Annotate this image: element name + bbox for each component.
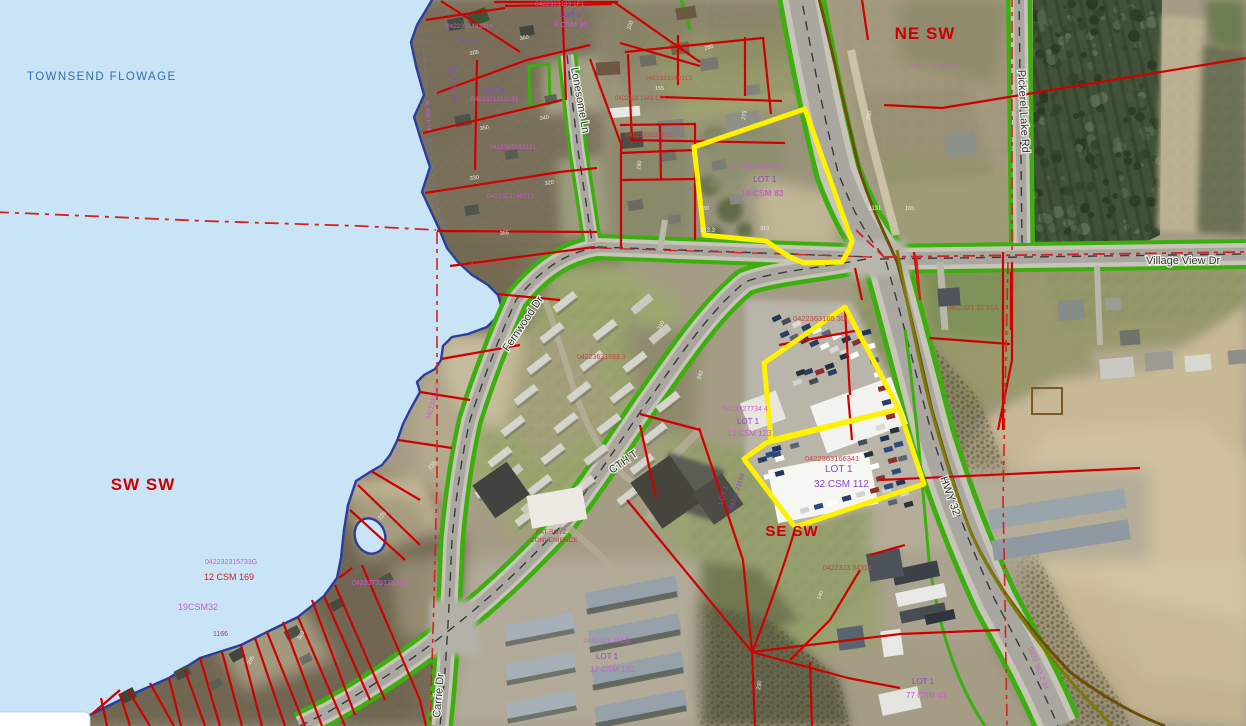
svg-text:0422323 34313: 0422323 34313: [823, 565, 872, 572]
svg-text:0422321313131: 0422321313131: [471, 96, 518, 103]
svg-text:LOT 1: LOT 1: [912, 677, 935, 686]
svg-text:0422363143331: 0422363143331: [489, 144, 536, 151]
svg-text:19CSM32: 19CSM32: [178, 602, 218, 612]
svg-text:313.3: 313.3: [700, 228, 716, 234]
svg-text:LOT 1: LOT 1: [825, 464, 853, 475]
svg-text:0422327734 4: 0422327734 4: [723, 406, 768, 413]
svg-text:340: 340: [539, 115, 549, 122]
svg-text:165: 165: [905, 206, 914, 212]
svg-text:0422331433314: 0422331433314: [446, 23, 493, 30]
svg-text:230: 230: [700, 206, 709, 212]
svg-text:32 CSM 112: 32 CSM 112: [814, 479, 869, 490]
svg-text:3 CSM 30: 3 CSM 30: [554, 20, 587, 29]
svg-text:77 CSM 43: 77 CSM 43: [906, 691, 947, 700]
svg-text:0422323140313: 0422323140313: [645, 75, 692, 82]
svg-text:CONVENIENCE: CONVENIENCE: [530, 537, 578, 544]
svg-text:LOT 1: LOT 1: [458, 37, 479, 46]
svg-text:1166: 1166: [213, 631, 228, 638]
svg-text:12 CSM 169: 12 CSM 169: [204, 572, 254, 582]
svg-text:355: 355: [500, 230, 510, 237]
svg-text:042232315733G: 042232315733G: [205, 559, 257, 566]
svg-text:0422323133 1F1: 0422323133 1F1: [535, 1, 585, 8]
svg-text:TOWNSEND FLOWAGE: TOWNSEND FLOWAGE: [27, 71, 177, 83]
svg-text:0422323140313: 0422323140313: [487, 193, 534, 200]
svg-text:0422321 31 31A: 0422321 31 31A: [947, 305, 999, 312]
svg-text:LOT 1: LOT 1: [753, 174, 777, 184]
svg-text:16 CSM 83: 16 CSM 83: [741, 188, 784, 198]
svg-text:0422323144131: 0422323144131: [470, 263, 521, 270]
svg-text:310: 310: [760, 226, 769, 232]
svg-text:3131: 3131: [868, 206, 882, 212]
svg-text:0422363166 3D: 0422363166 3D: [793, 314, 847, 323]
svg-text:2422421 2A1G: 2422421 2A1G: [583, 638, 630, 645]
svg-text:SW SW: SW SW: [111, 475, 176, 494]
svg-text:LOT 1: LOT 1: [560, 10, 581, 19]
svg-text:350: 350: [479, 125, 489, 132]
svg-text:155: 155: [655, 86, 664, 92]
svg-text:0422363166341: 0422363166341: [805, 454, 859, 463]
svg-text:0422323132321: 0422323132321: [625, 132, 672, 139]
svg-text:04223631693 3: 04223631693 3: [577, 354, 626, 361]
svg-text:13 CSM 123: 13 CSM 123: [727, 429, 772, 438]
svg-text:12 CSM 132: 12 CSM 132: [590, 665, 635, 674]
svg-text:Village View Dr: Village View Dr: [1146, 255, 1221, 267]
svg-text:LOT 1: LOT 1: [737, 417, 760, 426]
svg-text:0422321 13313: 0422321 13313: [909, 63, 958, 70]
svg-text:SE SW: SE SW: [765, 523, 818, 540]
svg-text:0422321414 14: 0422321414 14: [733, 164, 782, 171]
svg-text:320: 320: [544, 180, 554, 187]
svg-text:LOT 2: LOT 2: [483, 86, 504, 95]
svg-text:LOT 1: LOT 1: [596, 652, 619, 661]
svg-text:0422323 1343 13A: 0422323 1343 13A: [615, 96, 666, 102]
svg-text:330: 330: [469, 175, 479, 182]
svg-text:NE SW: NE SW: [895, 24, 956, 43]
svg-text:0422377317373E: 0422377317373E: [352, 580, 408, 587]
svg-text:FAT BOYZ: FAT BOYZ: [536, 529, 567, 536]
